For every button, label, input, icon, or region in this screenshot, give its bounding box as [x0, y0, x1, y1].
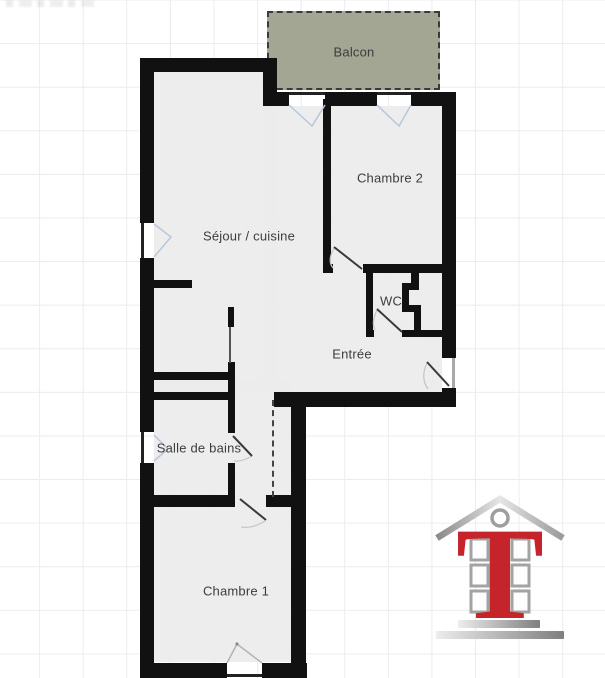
cropped-watermark-artifact: [6, 0, 94, 7]
wall: [140, 663, 227, 678]
wall: [140, 58, 154, 223]
agency-logo: T: [430, 492, 570, 644]
wall: [228, 307, 234, 327]
window-frame-chambre1: [227, 674, 262, 677]
wall: [150, 372, 235, 380]
room-label-chambre2: Chambre 2: [357, 171, 423, 186]
balcony-door-threshold: [289, 92, 325, 95]
wall: [228, 400, 235, 433]
window-frame-sejour: [141, 223, 144, 258]
room-label-chambre1: Chambre 1: [203, 584, 269, 599]
balcony-door-threshold: [377, 92, 411, 95]
wall: [366, 264, 373, 337]
wall: [414, 305, 421, 337]
room-label-sdb: Salle de bains: [157, 441, 241, 456]
wall: [291, 392, 306, 678]
wall: [363, 264, 456, 273]
room-label-sejour: Séjour / cuisine: [203, 229, 295, 244]
wall: [323, 99, 331, 273]
wall: [366, 330, 374, 337]
room-label-balcon: Balcon: [334, 45, 375, 60]
logo-letter-t: T: [456, 500, 544, 644]
wall: [266, 495, 291, 507]
wall: [325, 92, 377, 106]
wall: [140, 258, 154, 432]
floor-plan: Balcon Chambre 2 Séjour / cuisine WC Ent…: [0, 0, 605, 678]
wall: [442, 92, 456, 358]
wall: [402, 330, 442, 337]
floor-sdb-chambre1: [154, 380, 291, 662]
corridor-dashed-boundary: [272, 400, 274, 497]
window-frame-sdb: [141, 432, 144, 463]
entrance-door-threshold: [452, 358, 455, 388]
room-label-entree: Entrée: [332, 347, 372, 362]
wall: [262, 663, 307, 678]
wall: [140, 495, 235, 507]
wall: [140, 58, 277, 72]
wall: [154, 280, 192, 288]
wall: [140, 392, 235, 400]
sliding-partition-line: [229, 327, 231, 363]
wall: [323, 264, 333, 273]
room-label-wc: WC: [380, 294, 402, 309]
wall: [263, 92, 289, 106]
